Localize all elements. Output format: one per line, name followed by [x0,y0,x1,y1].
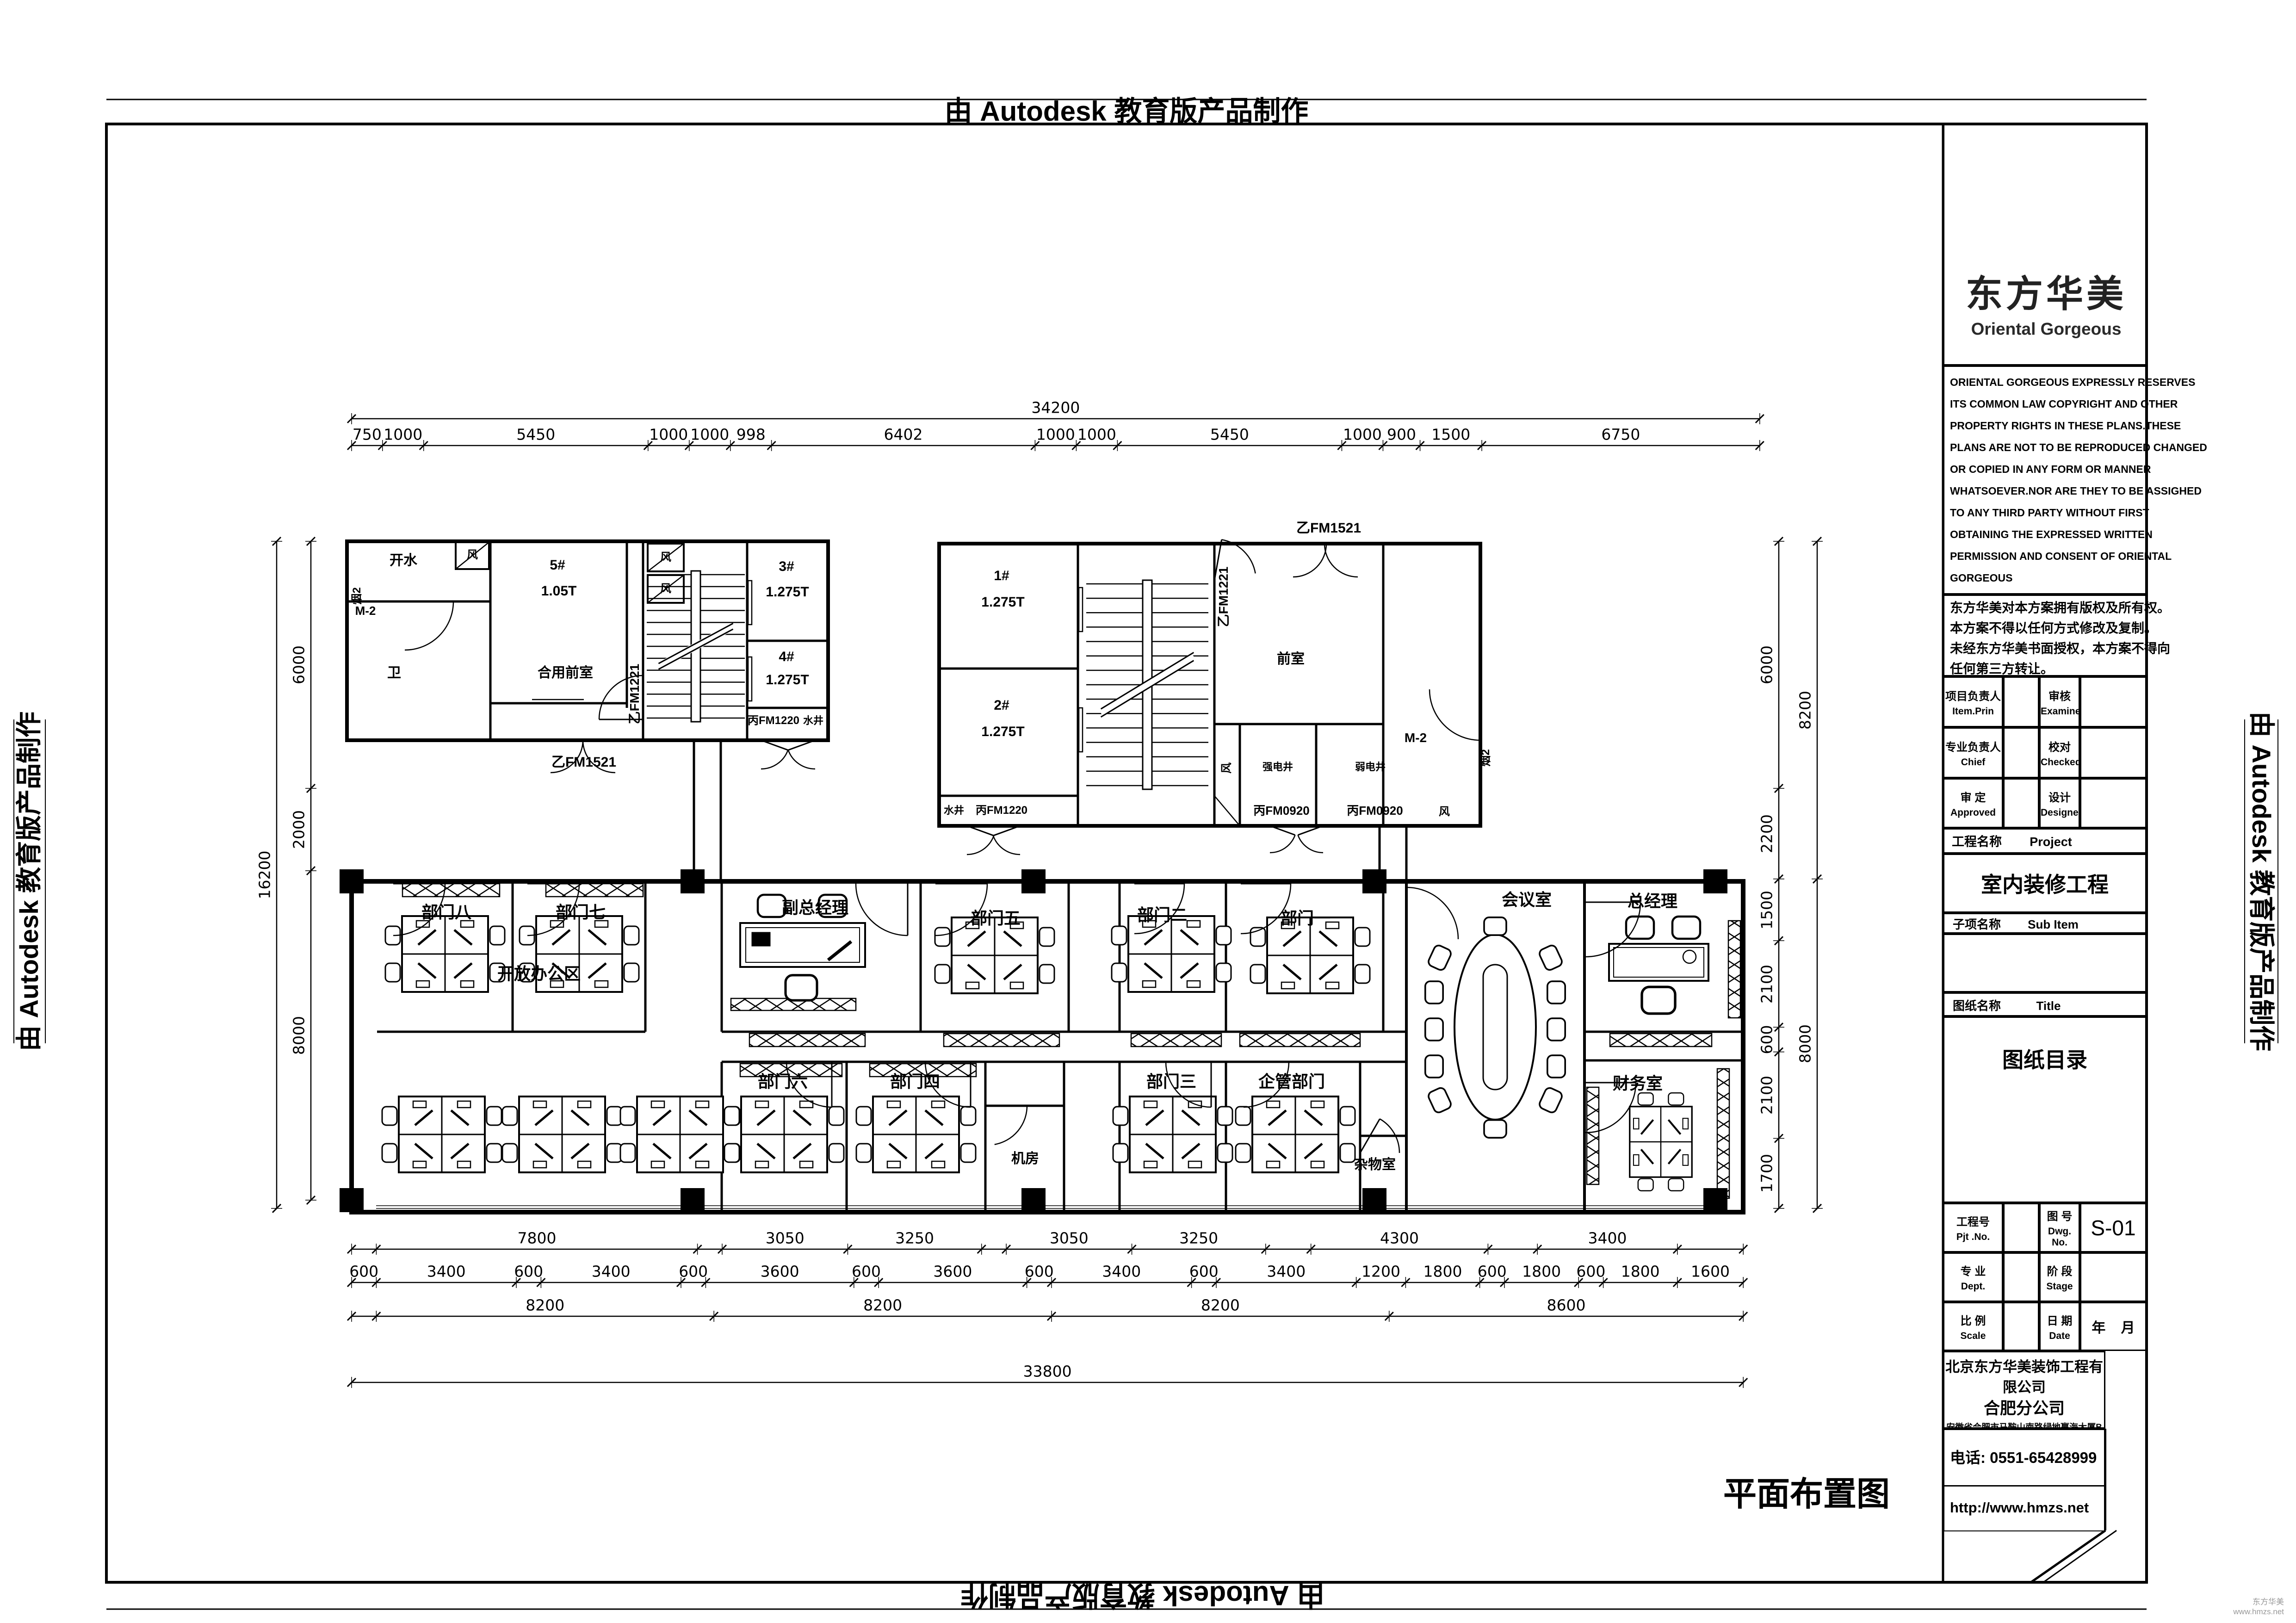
date-label-cell: 日 期 Date [2039,1302,2080,1351]
dim-label: 2200 [1759,814,1775,853]
item-prin-value-cell [2003,676,2039,727]
dwg-label-cell: 图 号 Dwg. No. [2039,1203,2080,1252]
dim-label: 6750 [1601,427,1640,442]
dim-label: 7800 [518,1231,557,1246]
copyright-cn-line: 本方案不得以任何方式修改及复制。 [1950,618,2145,638]
dwg-cn: 图 号 [2041,1207,2079,1223]
door-arc [1380,1119,1400,1153]
dept-cn: 专 业 [1944,1262,2002,1278]
stage-label-cell: 阶 段 Stage [2039,1252,2080,1302]
dim-label: 5450 [516,427,555,442]
door-arc [1270,835,1295,853]
water-well-label: 水井 [944,805,964,816]
core-left-m2-door: M-2 [355,605,376,617]
vent-icon-label: 风 [1221,762,1232,774]
drawing-sheet: 东方华美 Oriental Gorgeous ORIENTAL GORGEOUS… [0,0,2296,1623]
dim-label: 600 [1478,1264,1507,1279]
core-right-m2-door: M-2 [1405,731,1427,744]
dept-value-cell [2003,1252,2039,1302]
room-dept8: 部门八 [421,904,471,921]
copyright-line: GORGEOUS [1950,567,2145,589]
dim-label: 6402 [884,427,923,442]
checked-value-cell [2080,727,2147,778]
title-label-cn: 图纸名称 [1953,1000,2001,1012]
dim-label: 8000 [291,1016,307,1055]
dim-label: 2000 [291,810,307,849]
dim-label: 3400 [1102,1264,1141,1279]
subitem-value-cell [1943,934,2147,992]
copyright-en-cell: ORIENTAL GORGEOUS EXPRESSLY RESERVES ITS… [1943,365,2147,595]
examined-cn: 审核 [2041,687,2079,703]
core-left-hot-water: 开水 [390,554,417,568]
examined-label-cell: 审核 Examined [2039,676,2080,727]
dim-label: 600 [852,1264,881,1279]
approved-label-cell: 审 定 Approved [1943,778,2003,828]
scale-label-cell: 比 例 Scale [1943,1302,2003,1351]
dim-label: 3050 [766,1231,805,1246]
logo-cn: 东方华美 [1966,276,2127,313]
checked-cn: 校对 [2041,738,2079,754]
item-prin-cn: 项目负责人 [1944,687,2002,703]
door-arc [993,836,1020,855]
dept-en: Dept. [1944,1281,2002,1292]
company-name: 北京东方华美装饰工程有限公司 [1944,1357,2104,1398]
copyright-cn-line: 未经东方华美书面授权，本方案不得向 [1950,638,2145,659]
vent-icon-label: 风 [467,550,478,561]
lift4-capacity: 1.275T [766,673,809,687]
project-name: 室内装修工程 [1981,868,2109,898]
scale-en: Scale [1944,1331,2002,1342]
pjt-value-cell [2003,1203,2039,1252]
lift1-capacity: 1.275T [981,595,1024,609]
core-left-lobby: 合用前室 [538,666,593,680]
copyright-line: OBTAINING THE EXPRESSED WRITTEN [1950,524,2145,545]
approved-en: Approved [1944,807,2002,818]
title-label-en: Title [2036,1000,2061,1012]
dim-label: 8200 [526,1298,564,1313]
door-arc [405,601,453,650]
dim-label: 8600 [1547,1298,1586,1313]
drawing-title-cell: 图纸目录 [1943,1016,2147,1203]
room-dept6: 部门六 [758,1073,808,1090]
dim-label: 3250 [1179,1231,1218,1246]
copyright-line: TO ANY THIRD PARTY WITHOUT FIRST [1950,502,2145,524]
pjt-en: Pjt .No. [1944,1232,2002,1243]
dwg-no-cell: S-01 [2080,1203,2147,1252]
room-dept7: 部门七 [556,904,606,921]
autodesk-stamp-bottom: 由 Autodesk 教育版产品制作 [961,1581,1325,1609]
dim-label: 1000 [384,427,422,442]
project-label-cn: 工程名称 [1952,836,2002,849]
vent-icon-label: 风 [660,583,671,595]
strong-elec-shaft: 强电井 [1262,762,1293,772]
door-fm1221-label: 乙FM1221 [628,664,641,725]
dim-label: 1500 [1759,891,1775,929]
dim-label: 3400 [1588,1231,1627,1246]
company-cell: 北京东方华美装饰工程有限公司 合肥分公司 安徽省合肥市马鞍山南路绿地赢海大厦B座… [1943,1351,2105,1429]
door-fm0920-label: 丙FM0920 [1347,805,1403,817]
drawing-title: 图纸目录 [2002,1048,2087,1072]
approved-cn: 审 定 [1944,788,2002,805]
chief-value-cell [2003,727,2039,778]
door-arc [761,750,788,769]
logo-cell: 东方华美 Oriental Gorgeous [1943,124,2147,365]
lift3-label: 3# [779,560,794,574]
designed-en: Designed [2041,807,2079,818]
watermark: 东方华美 www.hmzs.net [2233,1597,2284,1617]
copyright-line: PROPERTY RIGHTS IN THESE PLANS.THESE [1950,415,2145,437]
item-prin-en: Item.Prin [1944,706,2002,717]
dim-label: 2100 [1759,1076,1775,1115]
dim-label: 1000 [1343,427,1382,442]
scale-value-cell [2003,1302,2039,1351]
date-value: 年 月 [2092,1316,2135,1337]
door-arc [856,884,908,935]
room-storage: 杂物室 [1354,1158,1396,1172]
examined-en: Examined [2041,706,2079,717]
dim-label: 8200 [863,1298,902,1313]
door-arc [1324,544,1358,577]
dim-label: 6000 [291,645,307,684]
dim-label: 600 [1189,1264,1219,1279]
sheet-title: 平面布置图 [1723,1478,1890,1511]
dim-label: 3400 [592,1264,631,1279]
dim-label: 8200 [1201,1298,1240,1313]
door-arc [995,1106,1027,1145]
dim-label: 3050 [1050,1231,1089,1246]
copyright-cn-line: 东方华美对本方案拥有版权及所有权。 [1950,598,2145,618]
dim-label: 600 [1759,1025,1775,1054]
dim-label: 1700 [1759,1154,1775,1193]
door-arc [788,750,815,769]
core-right-lobby: 前室 [1277,652,1305,666]
door-arc [1293,544,1326,577]
dim-label: 1200 [1362,1264,1400,1279]
room-gm: 总经理 [1628,893,1677,910]
checked-en: Checked [2041,757,2079,768]
copyright-line: ITS COMMON LAW COPYRIGHT AND OTHER [1950,393,2145,415]
dim-label: 1800 [1423,1264,1462,1279]
dim-label: 1800 [1522,1264,1561,1279]
dim-label: 1500 [1431,427,1470,442]
dim-label: 3250 [895,1231,934,1246]
room-open-office: 开放办公区 [497,966,581,982]
room-mgmt: 企管部门 [1258,1073,1325,1090]
stage-cn: 阶 段 [2041,1262,2079,1278]
room-dept4: 部门四 [890,1073,940,1090]
chief-en: Chief [1944,757,2002,768]
dim-label: 750 [353,427,382,442]
dim-label: 600 [679,1264,708,1279]
project-label-en: Project [2030,836,2072,849]
copyright-line: PLANS ARE NOT TO BE REPRODUCED CHANGED [1950,437,2145,458]
logo-en: Oriental Gorgeous [1971,321,2122,338]
dim-label: 3600 [933,1264,972,1279]
pjt-cn: 工程号 [1944,1213,2002,1229]
dim-label: 1800 [1621,1264,1660,1279]
dim-label: 3400 [1267,1264,1306,1279]
dim-label: 33800 [1023,1364,1072,1379]
checked-label-cell: 校对 Checked [2039,727,2080,778]
chief-label-cell: 专业负责人 Chief [1943,727,2003,778]
autodesk-stamp-right: 由 Autodesk 教育版产品制作 [2248,712,2274,1051]
subitem-label-row: 子项名称 Sub Item [1943,913,2147,934]
lift5-capacity: 1.05T [541,584,577,598]
dim-label: 3400 [427,1264,466,1279]
water-well-label: 水井 [803,716,823,726]
lift2-label: 2# [994,699,1009,712]
dim-label: 900 [1387,427,1416,442]
date-value-cell: 年 月 [2080,1302,2147,1351]
dim-label: 600 [1025,1264,1054,1279]
dim-label: 2100 [1759,965,1775,1004]
dept-label-cell: 专 业 Dept. [1943,1252,2003,1302]
dim-label: 1600 [1691,1264,1730,1279]
room-server: 机房 [1011,1152,1039,1166]
pjt-label-cell: 工程号 Pjt .No. [1943,1203,2003,1252]
dwg-en: Dwg. No. [2041,1226,2079,1248]
door-fm1221-label: 乙FM1221 [1217,567,1230,627]
vent-icon-label: 风 [660,552,671,563]
copyright-line: PERMISSION AND CONSENT OF ORIENTAL [1950,545,2145,567]
project-name-cell: 室内装修工程 [1943,854,2147,913]
dim-label: 8200 [1798,691,1813,730]
core-right-flue: 烟2 [1480,749,1491,766]
room-dept1: 部门一 [1281,910,1331,927]
door-fm1521-label: 乙FM1521 [1296,521,1361,535]
dim-label: 1000 [649,427,688,442]
dim-label: 8000 [1798,1024,1813,1063]
title-label-row: 图纸名称 Title [1943,992,2147,1016]
dwg-no: S-01 [2091,1215,2135,1240]
date-cn: 日 期 [2041,1312,2079,1328]
examined-value-cell [2080,676,2147,727]
room-meeting: 会议室 [1502,892,1552,908]
copyright-line: OR COPIED IN ANY FORM OR MANNER [1950,458,2145,480]
copyright-cn-cell: 东方华美对本方案拥有版权及所有权。 本方案不得以任何方式修改及复制。 未经东方华… [1943,595,2147,676]
designed-value-cell [2080,778,2147,828]
room-finance: 财务室 [1613,1075,1663,1092]
lift1-label: 1# [994,569,1009,583]
date-en: Date [2041,1331,2079,1342]
website-cell: http://www.hmzs.net [1943,1487,2105,1530]
autodesk-stamp-left: 由 Autodesk 教育版产品制作 [16,712,42,1051]
dim-label: 4300 [1380,1231,1419,1246]
phone: 电话: 0551-65428999 [1944,1430,2104,1485]
watermark-line1: 东方华美 [2233,1597,2284,1607]
project-label-row: 工程名称 Project [1943,828,2147,854]
website: http://www.hmzs.net [1944,1487,2104,1529]
copyright-line: WHATSOEVER.NOR ARE THEY TO BE ASSIGHED [1950,480,2145,502]
door-fm1521-label: 乙FM1521 [551,756,616,769]
autodesk-stamp-top: 由 Autodesk 教育版产品制作 [945,98,1309,125]
designed-cn: 设计 [2041,788,2079,805]
dim-label: 600 [1576,1264,1605,1279]
dim-label: 1000 [690,427,729,442]
dim-label: 5450 [1210,427,1249,442]
lift4-label: 4# [779,650,794,664]
weak-elec-shaft: 弱电井 [1355,762,1386,772]
dim-label: 16200 [257,850,272,899]
room-dept5: 部门五 [971,910,1021,927]
door-arc [1406,887,1458,939]
copyright-line: ORIENTAL GORGEOUS EXPRESSLY RESERVES [1950,372,2145,393]
room-dept2: 部门二 [1137,907,1187,923]
subitem-label-cn: 子项名称 [1953,918,2001,930]
chief-cn: 专业负责人 [1944,738,2002,754]
dim-label: 34200 [1031,400,1080,415]
scale-cn: 比 例 [1944,1312,2002,1328]
core-left-flue: 烟2 [352,587,363,604]
room-deputy-gm: 副总经理 [782,899,848,916]
dim-label: 3600 [761,1264,799,1279]
door-fm0920-label: 丙FM0920 [1253,805,1309,817]
lift5-label: 5# [550,558,565,572]
dim-label: 1000 [1077,427,1116,442]
approved-value-cell [2003,778,2039,828]
stage-en: Stage [2041,1281,2079,1292]
stage-value-cell [2080,1252,2147,1302]
dim-label: 998 [736,427,766,442]
room-dept3: 部门三 [1146,1073,1196,1090]
door-arc [1298,835,1323,853]
dim-label: 6000 [1759,645,1775,684]
lift2-capacity: 1.275T [981,725,1024,739]
item-prin-label-cell: 项目负责人 Item.Prin [1943,676,2003,727]
door-fm1220-label: 丙FM1220 [976,805,1027,816]
phone-cell: 电话: 0551-65428999 [1943,1429,2105,1487]
door-arc [967,836,994,855]
designed-label-cell: 设计 Designed [2039,778,2080,828]
door-arc [1430,689,1480,740]
subitem-label-en: Sub Item [2028,918,2079,930]
door-fm1220-label: 丙FM1220 [748,715,799,726]
company-branch: 合肥分公司 [1944,1398,2104,1420]
lift3-capacity: 1.275T [766,585,809,599]
watermark-line2: www.hmzs.net [2233,1607,2284,1617]
dim-label: 1000 [1036,427,1075,442]
core-left-wc: 卫 [387,666,401,680]
dim-label: 600 [514,1264,543,1279]
dim-label: 600 [349,1264,378,1279]
vent-icon-label: 风 [1439,806,1450,818]
